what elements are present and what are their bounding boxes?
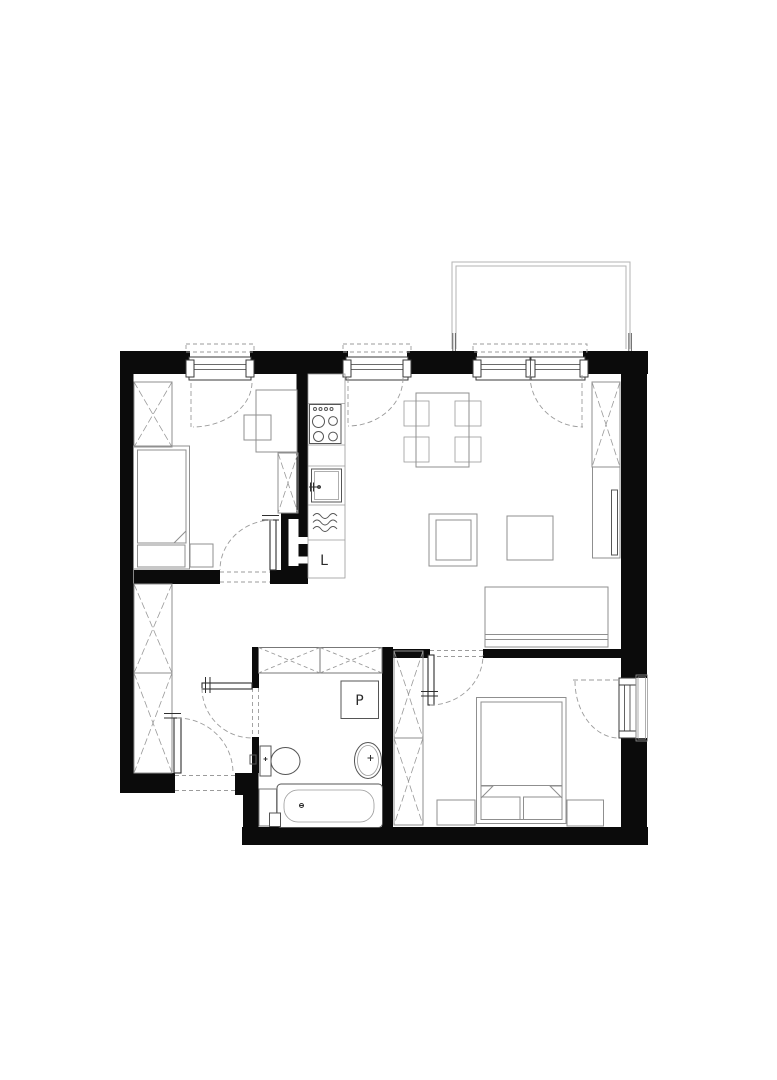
nightstand-icon — [190, 544, 213, 567]
coffee-table-icon — [429, 514, 477, 566]
balcony — [452, 262, 631, 351]
wardrobe-icon — [134, 584, 172, 773]
wardrobe-icon — [278, 453, 298, 513]
double-bed-icon — [477, 698, 567, 824]
wardrobe-icon — [394, 651, 423, 825]
window-living-room — [343, 344, 411, 426]
dining-chair-icon — [455, 401, 481, 426]
interior-walls — [134, 374, 621, 830]
window-bedroom — [573, 675, 648, 741]
living-room — [404, 382, 620, 647]
wardrobe-icon — [134, 382, 172, 447]
chair-icon — [244, 415, 271, 440]
nightstand-icon — [437, 800, 475, 825]
bedroom-door — [421, 651, 483, 706]
nightstand-icon — [567, 800, 604, 826]
floor-plan-page: L — [0, 0, 777, 1080]
window-swing — [191, 383, 252, 427]
small-bedroom — [134, 382, 299, 582]
washbasin-icon — [355, 743, 382, 779]
stove-icon — [310, 405, 342, 444]
floor-plan-canvas: L — [0, 0, 777, 1080]
dining-table-icon — [404, 393, 481, 467]
fridge-label: L — [320, 553, 328, 569]
overhead-storage-icon — [259, 648, 383, 674]
dining-chair-icon — [455, 437, 481, 462]
kitchen-sink-icon — [309, 469, 342, 502]
door-swing — [530, 375, 583, 427]
dishwasher-icon — [313, 514, 337, 532]
window-swing — [348, 378, 403, 426]
balcony-post-left-icon — [453, 333, 456, 351]
washing-machine-icon: P — [341, 681, 379, 719]
balcony-door — [473, 344, 588, 427]
desk-icon — [256, 390, 297, 452]
kitchen-units: L — [308, 374, 345, 578]
bathtub-icon — [277, 784, 383, 828]
washing-machine-label: P — [355, 693, 363, 709]
window-swing — [573, 680, 619, 738]
single-bed-icon — [134, 446, 190, 569]
wardrobe-icon — [592, 382, 620, 467]
bedroom — [394, 651, 648, 827]
fridge-icon: L — [320, 553, 328, 569]
sofa-icon — [485, 587, 608, 647]
side-table-icon — [507, 516, 553, 560]
tv-cabinet-icon — [593, 467, 621, 558]
